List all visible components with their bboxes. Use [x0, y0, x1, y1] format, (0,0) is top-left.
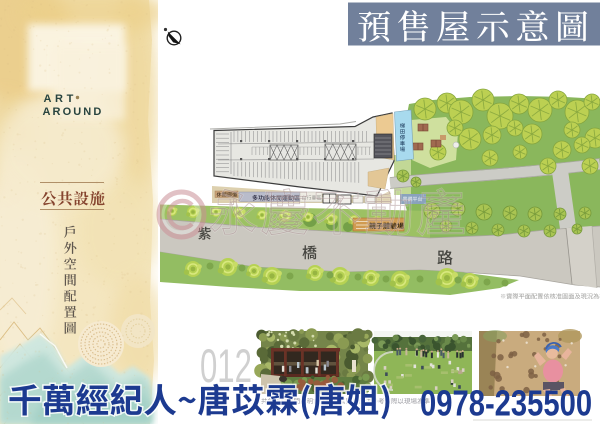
svg-text:AROUND: AROUND — [43, 106, 104, 118]
svg-text:0978-235500: 0978-235500 — [420, 383, 592, 424]
svg-text:ART: ART — [44, 93, 77, 105]
